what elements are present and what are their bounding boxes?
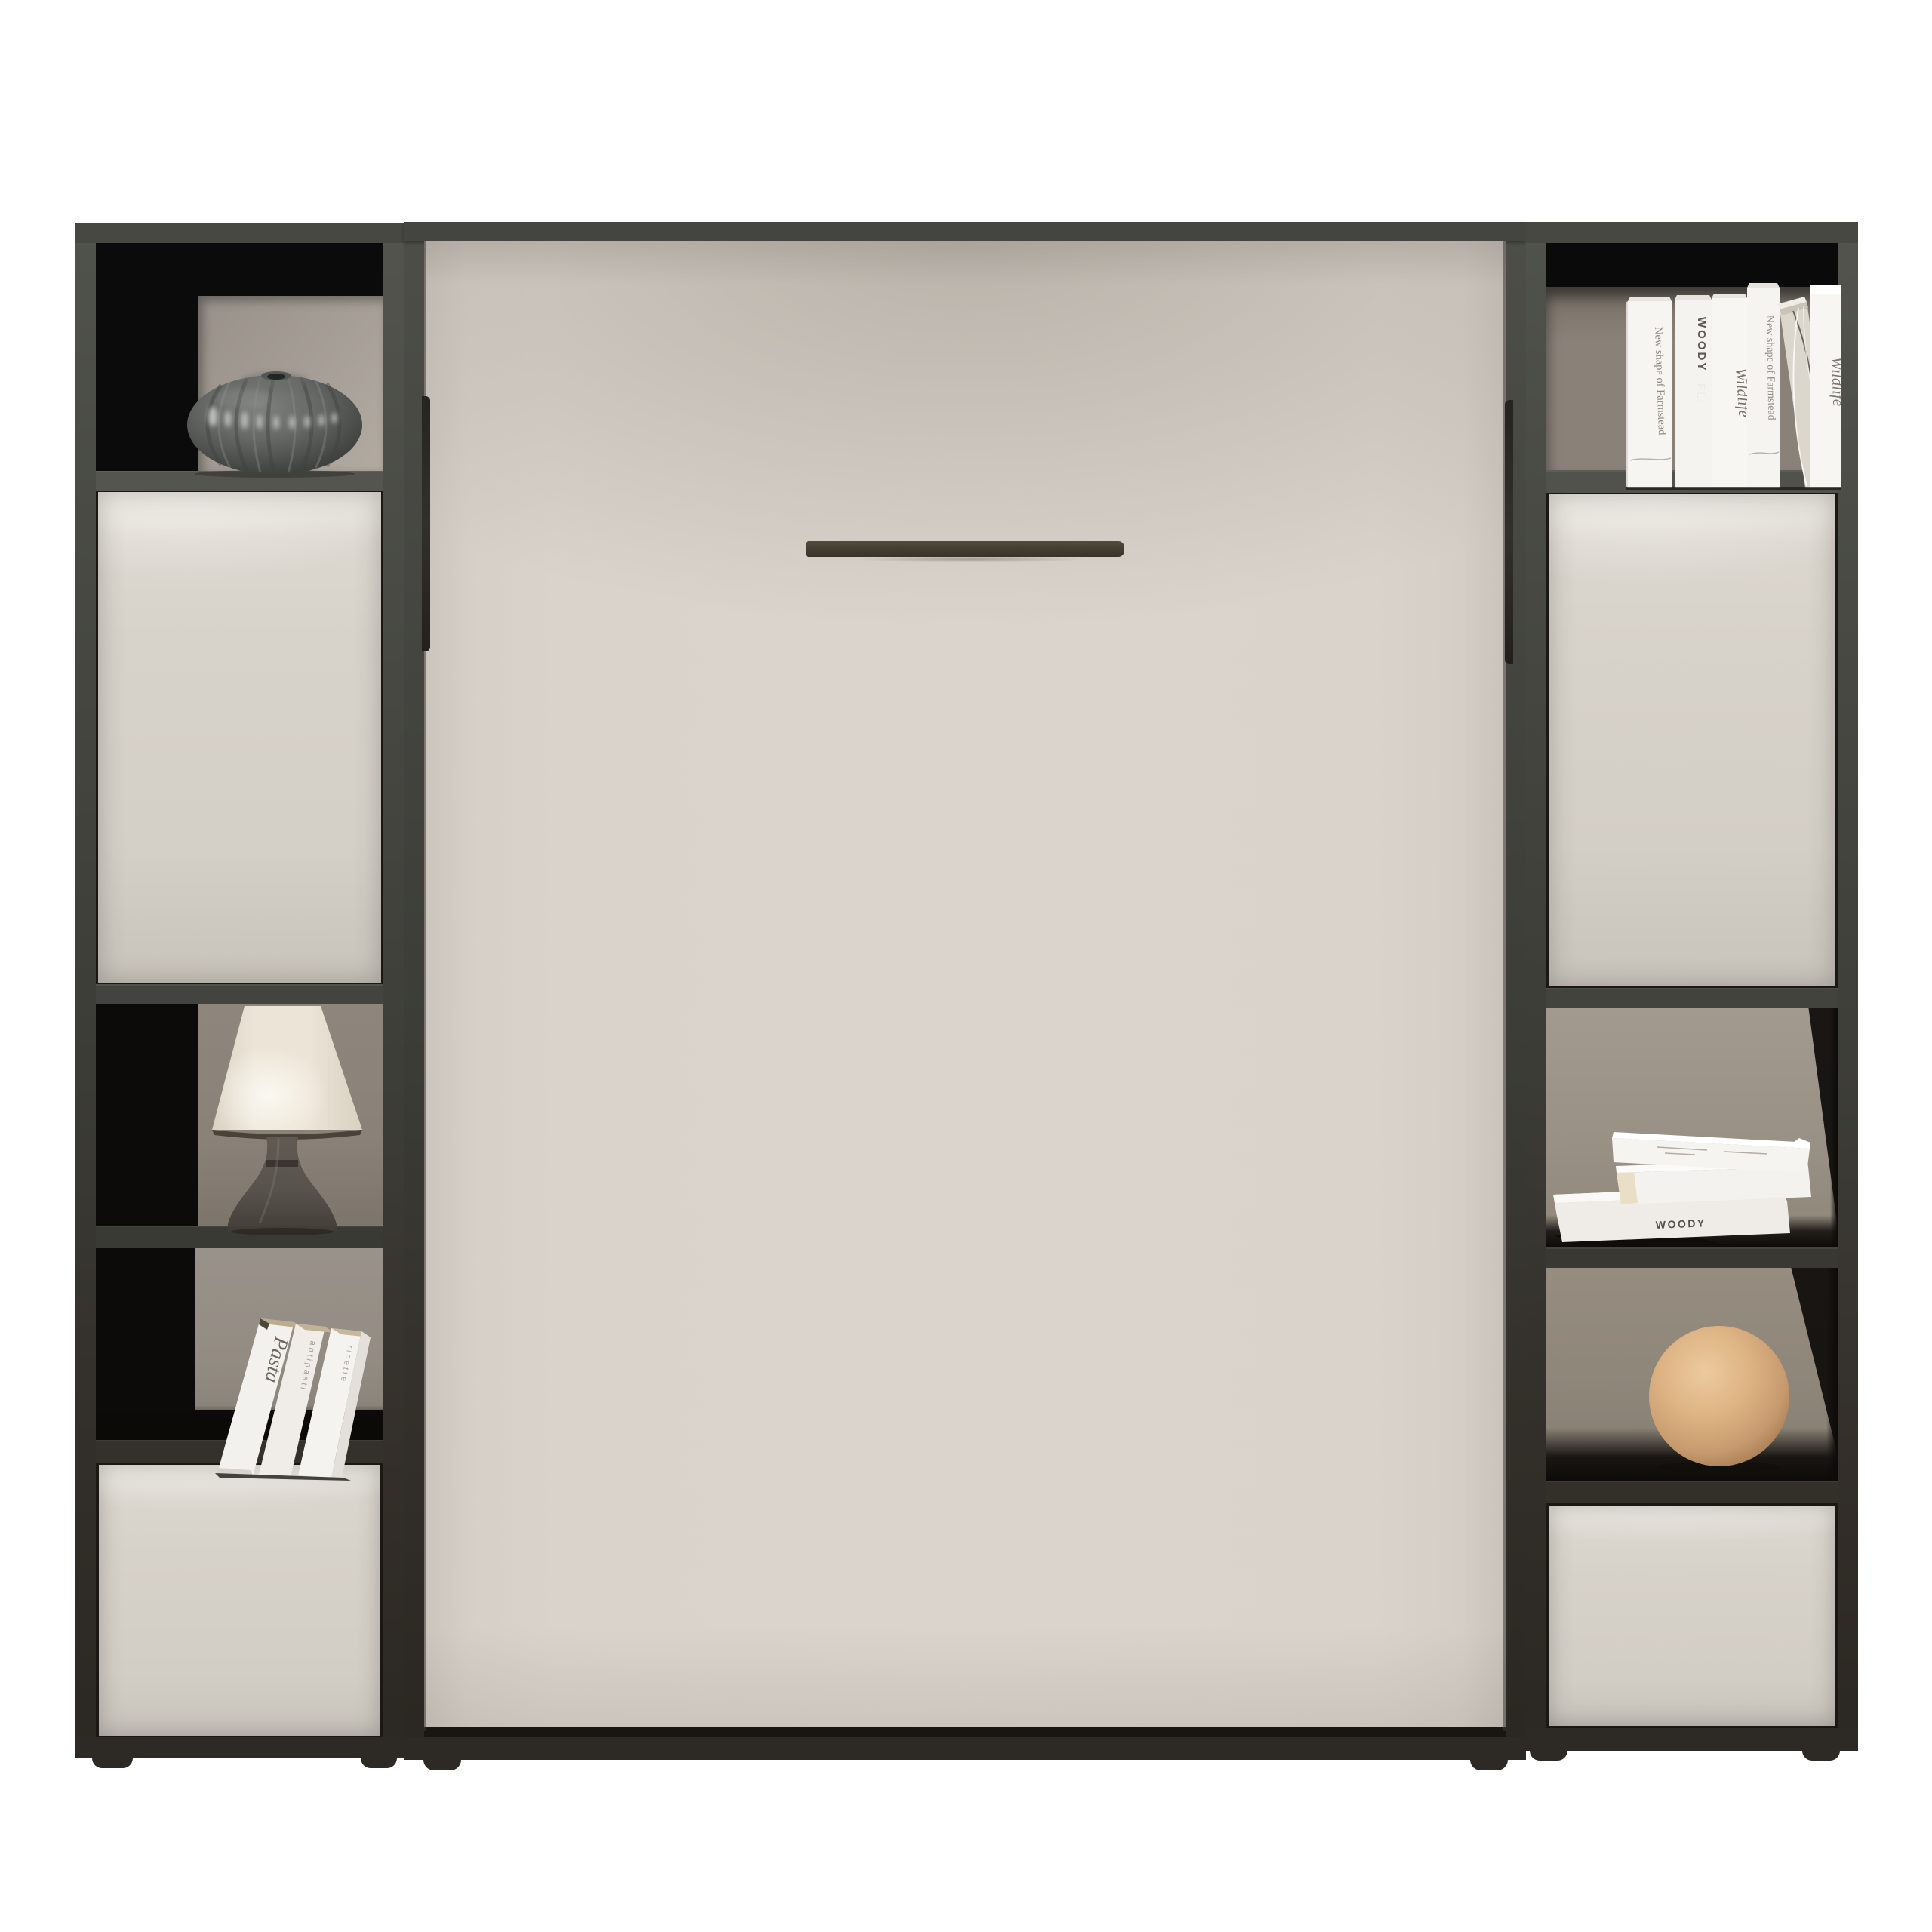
svg-text:Wildlife: Wildlife: [1828, 356, 1841, 406]
svg-text:WOODY: WOODY: [1655, 1217, 1706, 1231]
svg-text:FLI: FLI: [1694, 383, 1707, 405]
svg-text:WOODY: WOODY: [1695, 317, 1708, 372]
svg-text:New shape of Farmstead: New shape of Farmstead: [1764, 315, 1777, 420]
